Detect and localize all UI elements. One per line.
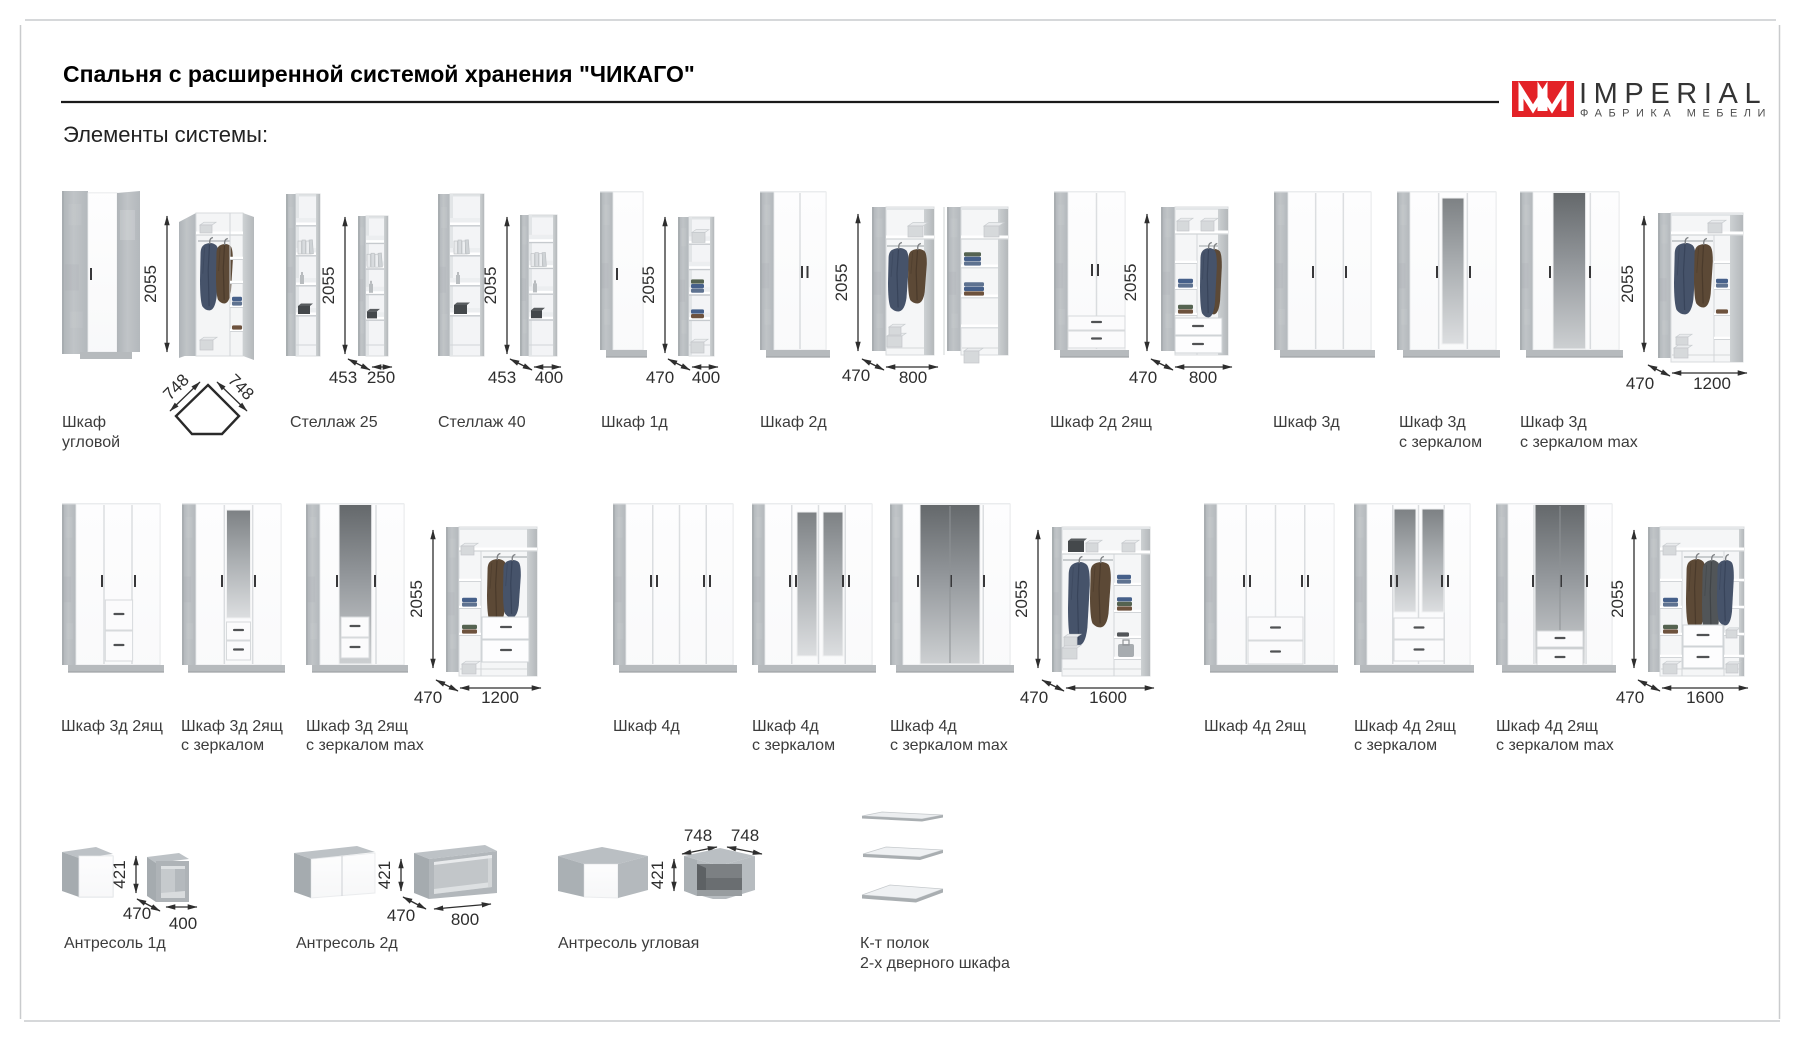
svg-text:Шкаф 4д: Шкаф 4д [752,718,819,735]
svg-text:Шкаф 2д 2ящ: Шкаф 2д 2ящ [1050,414,1152,431]
svg-text:ФАБРИКА МЕБЕЛИ: ФАБРИКА МЕБЕЛИ [1580,108,1772,120]
svg-text:2055: 2055 [639,266,658,304]
svg-text:Антресоль угловая: Антресоль угловая [558,935,699,952]
svg-text:2055: 2055 [1608,580,1627,618]
svg-text:Шкаф 4д: Шкаф 4д [890,718,957,735]
svg-text:748: 748 [684,826,712,845]
svg-text:Шкаф 4д: Шкаф 4д [613,718,680,735]
svg-text:470: 470 [414,688,442,707]
svg-text:Шкаф 3д: Шкаф 3д [1399,414,1466,431]
svg-text:2055: 2055 [1121,264,1140,302]
svg-text:с зеркалом max: с зеркалом max [890,737,1008,754]
svg-text:с зеркалом: с зеркалом [181,737,264,754]
svg-text:Антресоль 1д: Антресоль 1д [64,935,166,952]
svg-text:Шкаф 3д 2ящ: Шкаф 3д 2ящ [61,718,163,735]
svg-text:2055: 2055 [319,267,338,305]
svg-text:Шкаф: Шкаф [62,414,106,431]
svg-text:470: 470 [1616,688,1644,707]
svg-text:с зеркалом max: с зеркалом max [1520,434,1638,451]
svg-text:470: 470 [1626,374,1654,393]
svg-text:470: 470 [646,368,674,387]
svg-text:250: 250 [367,368,395,387]
svg-text:800: 800 [1189,368,1217,387]
svg-text:400: 400 [692,368,720,387]
svg-text:IMPERIAL: IMPERIAL [1579,78,1767,110]
svg-text:421: 421 [648,861,667,889]
svg-text:470: 470 [123,904,151,923]
svg-text:Шкаф 3д: Шкаф 3д [1520,414,1587,431]
svg-text:1200: 1200 [481,688,519,707]
svg-text:2055: 2055 [1618,265,1637,303]
svg-text:Шкаф 4д 2ящ: Шкаф 4д 2ящ [1204,718,1306,735]
svg-text:Шкаф 2д: Шкаф 2д [760,414,827,431]
svg-text:470: 470 [842,366,870,385]
svg-text:Шкаф 3д 2ящ: Шкаф 3д 2ящ [306,718,408,735]
svg-text:Спальня с расширенной системой: Спальня с расширенной системой хранения … [63,61,695,87]
svg-text:1600: 1600 [1686,688,1724,707]
svg-text:800: 800 [899,368,927,387]
svg-text:с зеркалом max: с зеркалом max [306,737,424,754]
svg-text:470: 470 [1020,688,1048,707]
svg-text:с зеркалом max: с зеркалом max [1496,737,1614,754]
svg-text:2055: 2055 [481,267,500,305]
svg-text:2055: 2055 [832,264,851,302]
svg-text:470: 470 [1129,368,1157,387]
svg-text:470: 470 [387,906,415,925]
svg-text:400: 400 [535,368,563,387]
svg-text:Стеллаж 25: Стеллаж 25 [290,414,378,431]
svg-text:Шкаф 4д 2ящ: Шкаф 4д 2ящ [1354,718,1456,735]
svg-text:Шкаф 3д: Шкаф 3д [1273,414,1340,431]
svg-text:с зеркалом: с зеркалом [752,737,835,754]
svg-text:1600: 1600 [1089,688,1127,707]
svg-text:К-т полок: К-т полок [860,935,930,952]
svg-text:800: 800 [451,910,479,929]
svg-text:748: 748 [731,826,759,845]
svg-text:1200: 1200 [1693,374,1731,393]
svg-text:Антресоль 2д: Антресоль 2д [296,935,398,952]
svg-text:2055: 2055 [1012,580,1031,618]
svg-text:453: 453 [488,368,516,387]
svg-text:2055: 2055 [141,265,160,303]
svg-text:421: 421 [110,860,129,888]
svg-text:угловой: угловой [62,434,120,451]
svg-text:2055: 2055 [407,580,426,618]
svg-text:421: 421 [375,861,394,889]
svg-text:2-х дверного шкафа: 2-х дверного шкафа [860,955,1010,972]
svg-text:Шкаф 4д 2ящ: Шкаф 4д 2ящ [1496,718,1598,735]
svg-text:Элементы системы:: Элементы системы: [63,122,268,147]
svg-text:с зеркалом: с зеркалом [1354,737,1437,754]
svg-text:400: 400 [169,914,197,933]
svg-text:Стеллаж 40: Стеллаж 40 [438,414,526,431]
svg-text:с зеркалом: с зеркалом [1399,434,1482,451]
svg-text:Шкаф 3д 2ящ: Шкаф 3д 2ящ [181,718,283,735]
svg-text:453: 453 [329,368,357,387]
svg-text:Шкаф 1д: Шкаф 1д [601,414,668,431]
